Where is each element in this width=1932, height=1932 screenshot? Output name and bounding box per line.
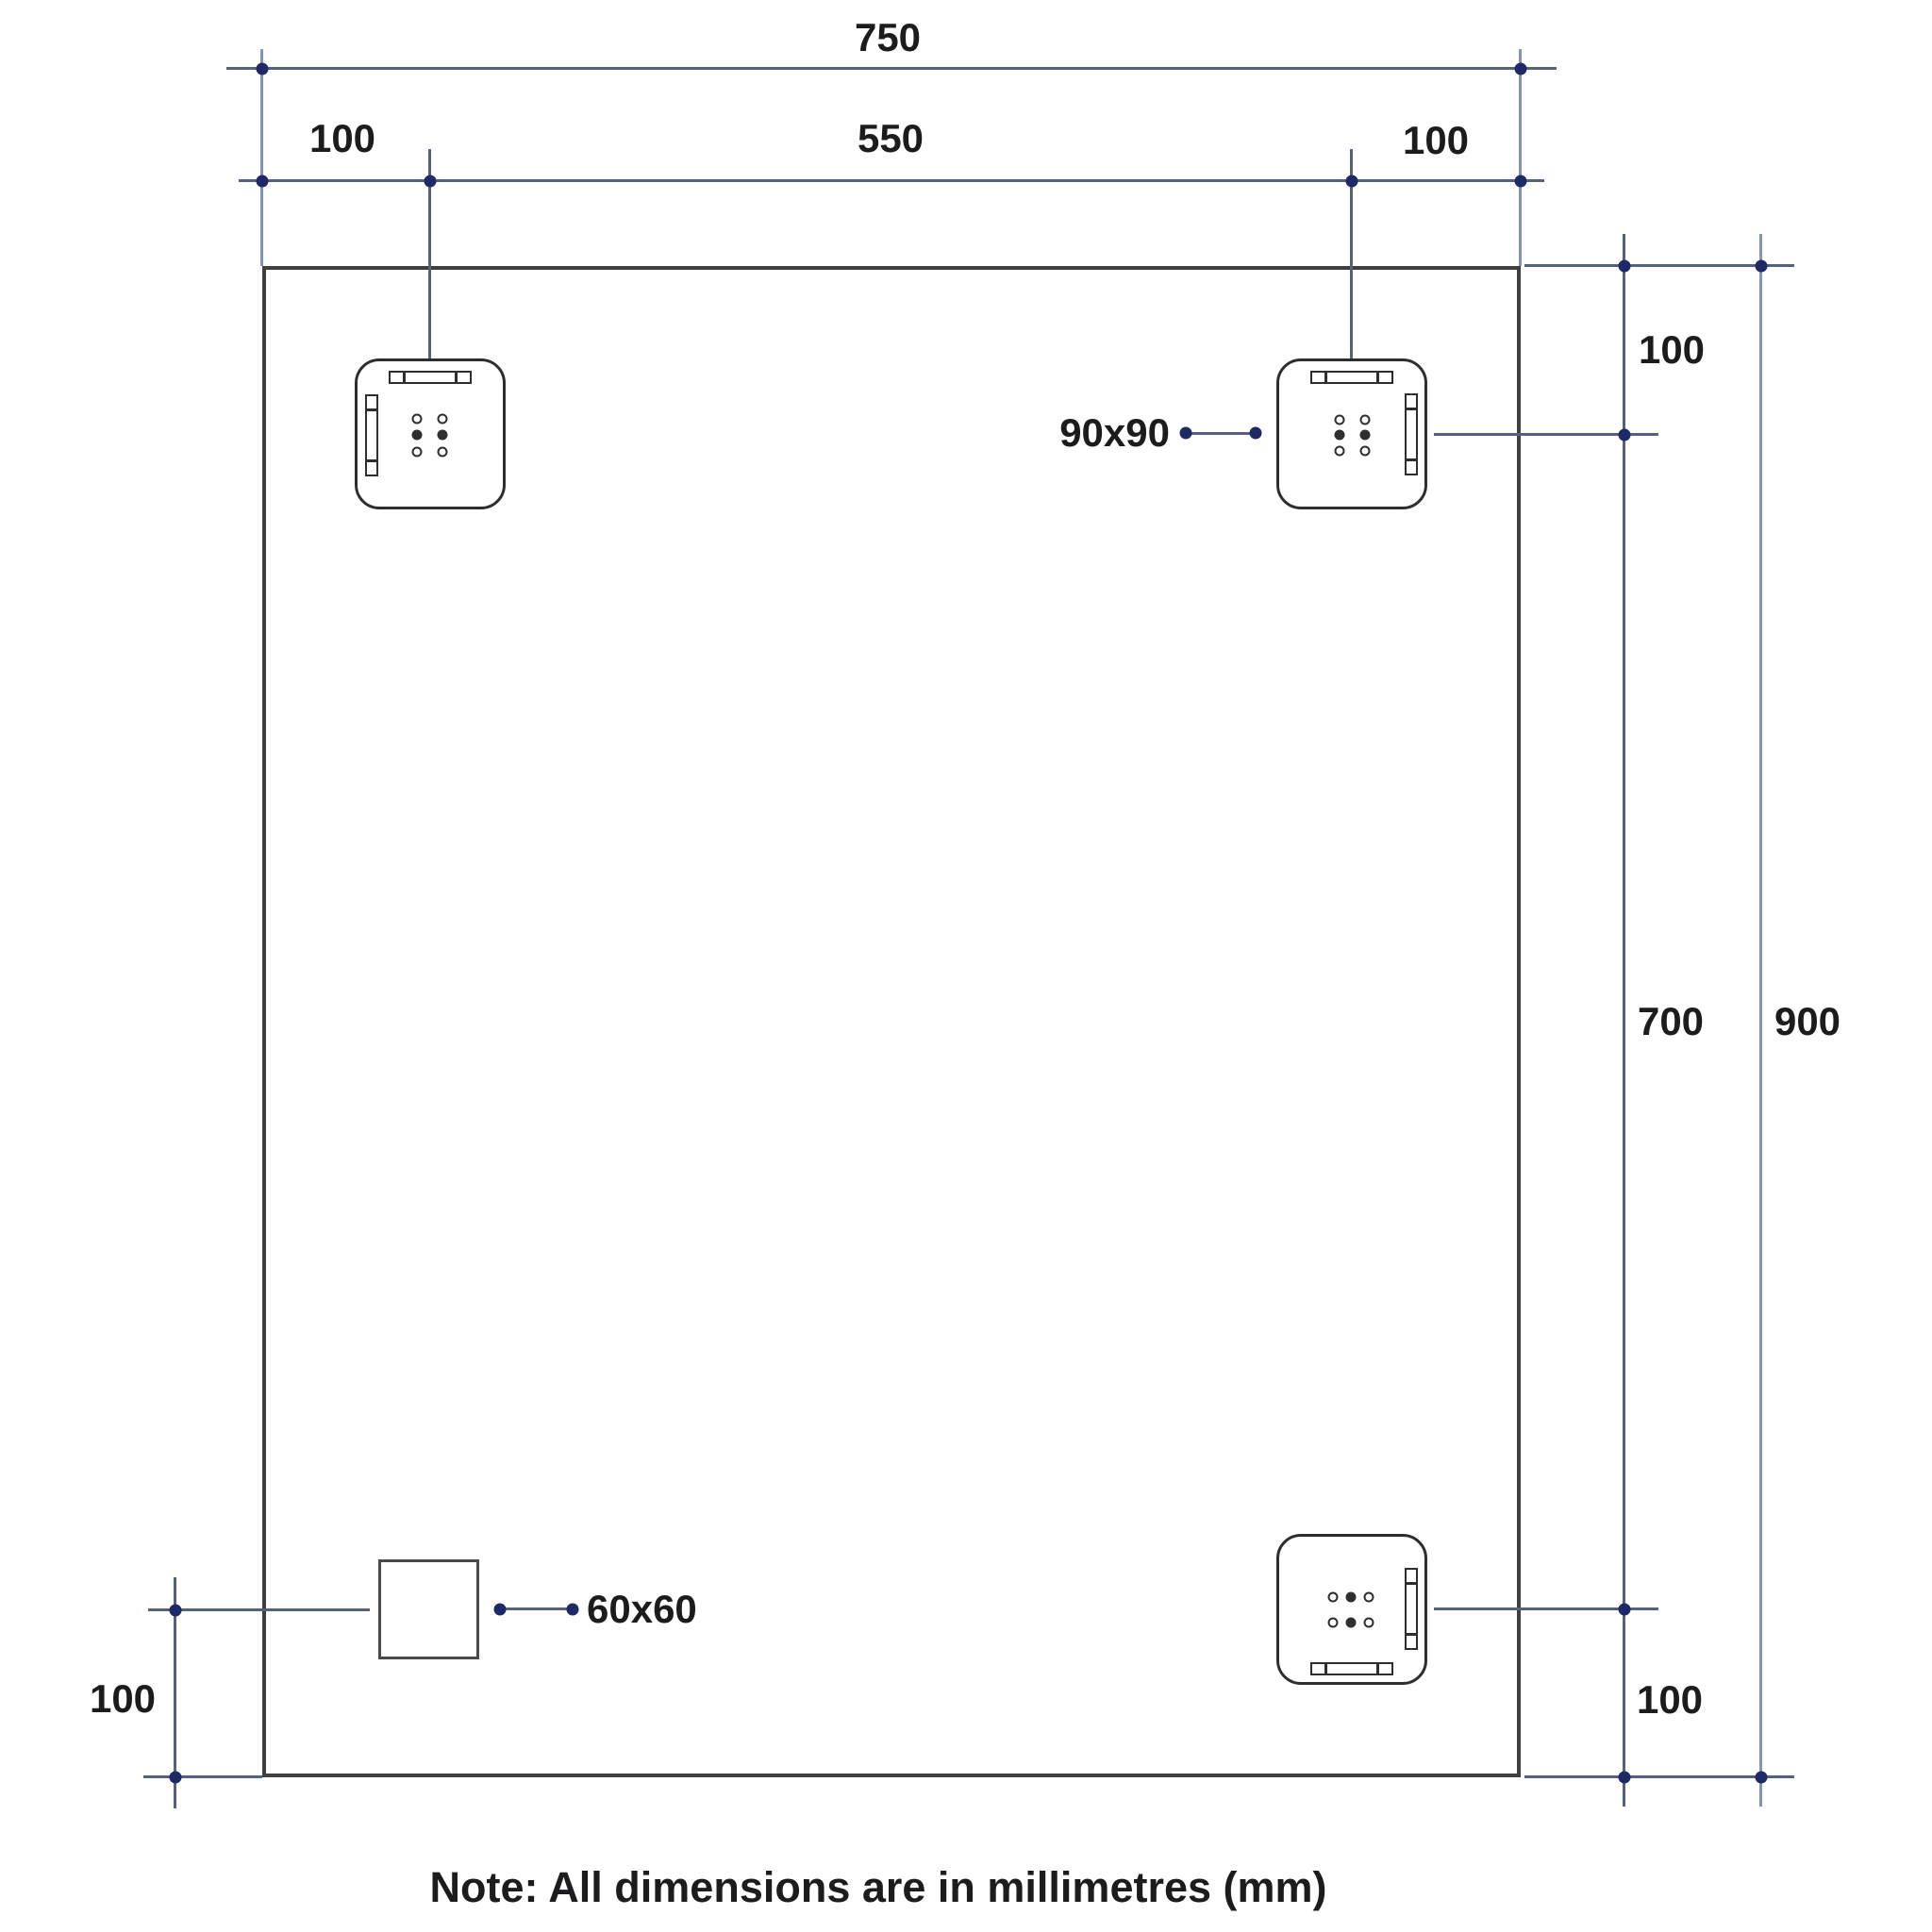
screw-hole <box>1335 446 1345 457</box>
bracket-slot-vertical <box>1405 393 1418 475</box>
callout-label-bracket-size: 90x90 <box>1059 410 1170 456</box>
dimension-dot <box>1756 260 1768 273</box>
screw-hole <box>1364 1592 1374 1603</box>
screw-hole <box>412 414 423 425</box>
extension-line-panel-bottom-right <box>1524 1775 1794 1778</box>
dimension-dot <box>1515 63 1527 75</box>
dim-line-right-overall <box>1759 234 1762 1807</box>
extension-line-top-right-corner <box>1519 49 1522 266</box>
dim-label-height-bottom: 100 <box>1637 1677 1703 1723</box>
bracket-slot-horizontal <box>389 371 472 384</box>
dimension-dot <box>170 1605 182 1617</box>
screw-hole <box>1346 1618 1357 1628</box>
screw-hole <box>412 430 423 441</box>
screw-hole <box>1328 1618 1339 1628</box>
mounting-bracket-bottom-right <box>1276 1534 1427 1685</box>
dim-line-overall-width <box>226 67 1557 70</box>
screw-hole <box>438 414 448 425</box>
dimension-dot <box>170 1772 182 1784</box>
screw-hole <box>1335 430 1345 441</box>
dim-label-width-overall: 750 <box>855 15 921 60</box>
dimension-dot <box>1619 429 1631 441</box>
dim-label-height-middle: 700 <box>1638 999 1704 1044</box>
bracket-slot-vertical <box>365 394 378 476</box>
dimension-dot <box>1619 1604 1631 1616</box>
screw-hole <box>438 430 448 441</box>
dim-label-width-left: 100 <box>309 116 375 161</box>
screw-hole <box>1346 1592 1357 1603</box>
dimension-dot <box>1515 175 1527 188</box>
screw-hole <box>1360 430 1371 441</box>
dim-label-width-center: 550 <box>858 116 924 161</box>
dim-label-width-right: 100 <box>1403 118 1469 163</box>
dim-line-right-inner <box>1623 234 1625 1807</box>
dimension-dot <box>425 175 437 188</box>
screw-hole <box>1364 1618 1374 1628</box>
dimension-dot <box>257 175 269 188</box>
screw-hole <box>1360 415 1371 425</box>
units-note: Note: All dimensions are in millimetres … <box>429 1863 1326 1912</box>
screw-hole <box>412 447 423 458</box>
callout-label-square-size: 60x60 <box>587 1587 697 1632</box>
bracket-slot-horizontal <box>1310 1662 1393 1675</box>
dimension-dot <box>1619 1772 1631 1784</box>
dimension-drawing: 750 100 550 100 100 700 900 100 100 90x9… <box>0 0 1932 1932</box>
extension-line-top-left-corner <box>260 49 263 266</box>
dimension-dot <box>1756 1772 1768 1784</box>
dimension-dot <box>1180 427 1192 440</box>
extension-line-panel-bottom-left <box>143 1775 262 1778</box>
dim-label-left-bottom: 100 <box>90 1676 156 1722</box>
dimension-dot <box>1619 260 1631 273</box>
callout-arrow-bracket <box>1184 432 1257 435</box>
bracket-slot-vertical <box>1405 1568 1418 1650</box>
screw-hole <box>1328 1592 1339 1603</box>
dim-label-height-overall: 900 <box>1774 999 1840 1044</box>
square-cutout-60x60 <box>378 1559 479 1659</box>
dim-label-height-top: 100 <box>1639 327 1705 373</box>
bracket-slot-horizontal <box>1310 371 1393 384</box>
screw-hole <box>1360 446 1371 457</box>
screw-hole <box>1335 415 1345 425</box>
mounting-bracket-top-right <box>1276 358 1427 509</box>
dimension-dot <box>1346 175 1358 188</box>
extension-line-panel-top-right <box>1524 264 1794 267</box>
screw-hole <box>438 447 448 458</box>
dimension-dot <box>257 63 269 75</box>
dimension-dot <box>567 1604 579 1616</box>
dimension-dot <box>1250 427 1262 440</box>
callout-arrow-square <box>498 1607 575 1610</box>
dimension-dot <box>494 1604 507 1616</box>
mounting-bracket-top-left <box>355 358 506 509</box>
